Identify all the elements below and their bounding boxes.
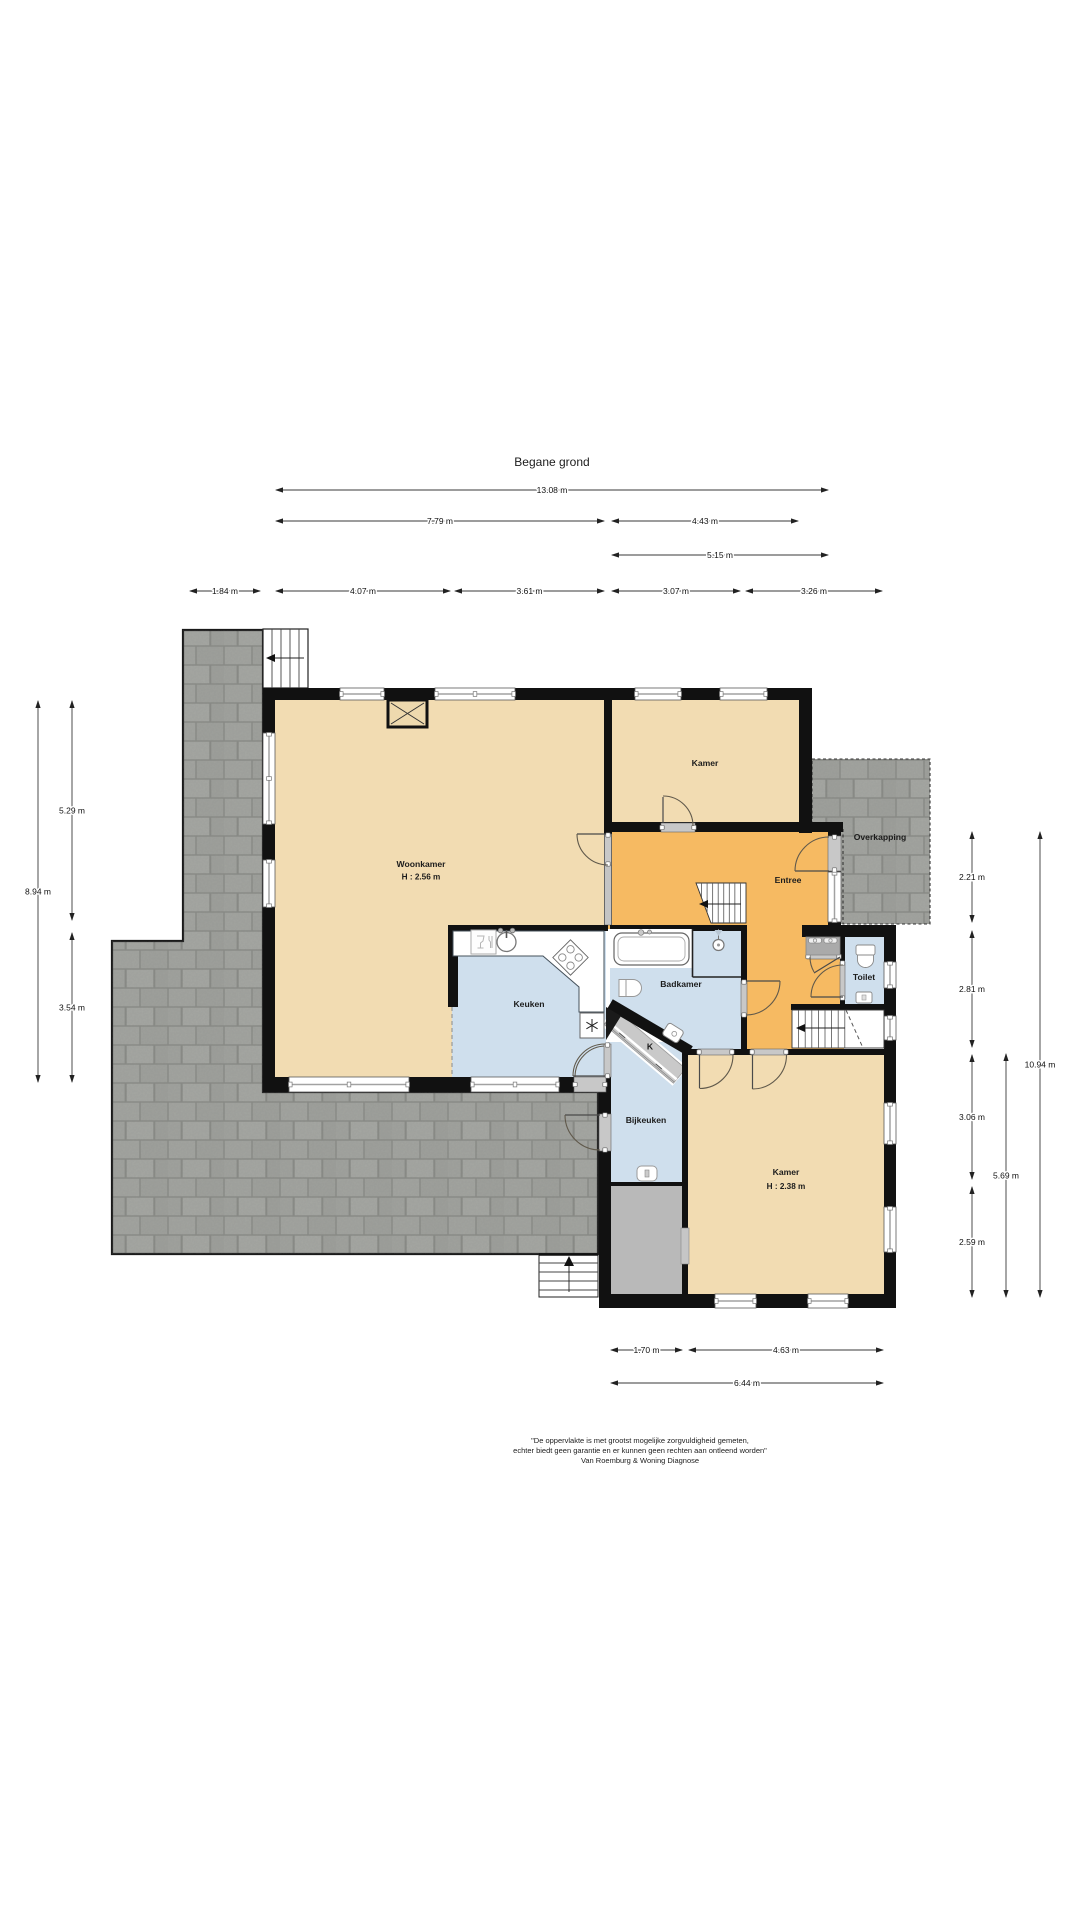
svg-text:Badkamer: Badkamer: [660, 979, 702, 989]
svg-text:2.21 m: 2.21 m: [959, 872, 985, 882]
svg-text:5.69 m: 5.69 m: [993, 1171, 1019, 1181]
svg-text:K: K: [647, 1042, 654, 1052]
svg-text:4.07 m: 4.07 m: [350, 586, 376, 596]
svg-text:3.26 m: 3.26 m: [801, 586, 827, 596]
svg-text:Toilet: Toilet: [853, 972, 875, 982]
svg-text:4.43 m: 4.43 m: [692, 516, 718, 526]
svg-text:H : 2.38 m: H : 2.38 m: [767, 1182, 806, 1191]
svg-text:8.94 m: 8.94 m: [25, 887, 51, 897]
svg-text:Kamer: Kamer: [773, 1167, 800, 1177]
svg-text:5.29 m: 5.29 m: [59, 806, 85, 816]
svg-text:6.44 m: 6.44 m: [734, 1378, 760, 1388]
svg-text:7.79 m: 7.79 m: [427, 516, 453, 526]
svg-text:Entree: Entree: [775, 875, 802, 885]
svg-text:Begane grond: Begane grond: [514, 455, 589, 469]
svg-text:"De oppervlakte is met grootst: "De oppervlakte is met grootst mogelijke…: [531, 1436, 749, 1445]
svg-text:3.06 m: 3.06 m: [959, 1112, 985, 1122]
svg-text:3.61 m: 3.61 m: [517, 586, 543, 596]
svg-text:10.94 m: 10.94 m: [1025, 1060, 1056, 1070]
svg-text:Kamer: Kamer: [692, 758, 719, 768]
svg-text:H : 2.56 m: H : 2.56 m: [402, 873, 441, 882]
svg-text:5.15 m: 5.15 m: [707, 550, 733, 560]
svg-text:2.81 m: 2.81 m: [959, 984, 985, 994]
svg-text:4.63 m: 4.63 m: [773, 1345, 799, 1355]
svg-text:Van Roemburg & Woning Diagnose: Van Roemburg & Woning Diagnose: [581, 1456, 699, 1465]
svg-text:1.70 m: 1.70 m: [634, 1345, 660, 1355]
svg-text:Bijkeuken: Bijkeuken: [626, 1115, 667, 1125]
svg-text:echter biedt geen garantie en: echter biedt geen garantie en er kunnen …: [513, 1446, 767, 1455]
svg-text:Keuken: Keuken: [513, 999, 544, 1009]
svg-text:2.59 m: 2.59 m: [959, 1237, 985, 1247]
svg-text:3.54 m: 3.54 m: [59, 1003, 85, 1013]
svg-text:3.07 m: 3.07 m: [663, 586, 689, 596]
svg-text:1.84 m: 1.84 m: [212, 586, 238, 596]
svg-text:Woonkamer: Woonkamer: [396, 859, 446, 869]
svg-text:Overkapping: Overkapping: [854, 832, 907, 842]
svg-text:13.08 m: 13.08 m: [537, 485, 568, 495]
